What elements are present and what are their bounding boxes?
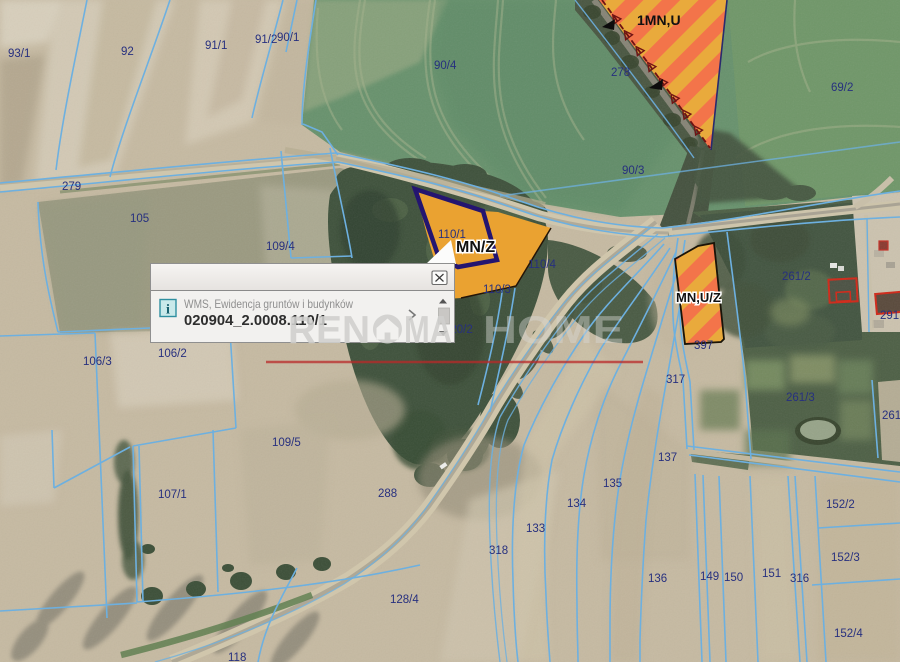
- svg-text:134: 134: [567, 498, 587, 510]
- svg-text:316: 316: [790, 573, 809, 585]
- svg-text:152/3: 152/3: [831, 552, 860, 564]
- svg-text:MN/Z: MN/Z: [456, 239, 495, 256]
- svg-text:109/4: 109/4: [266, 241, 295, 253]
- svg-text:110/4: 110/4: [528, 259, 557, 271]
- svg-text:118: 118: [228, 652, 246, 662]
- svg-text:91/1: 91/1: [205, 40, 227, 52]
- svg-text:291: 291: [880, 310, 899, 322]
- svg-text:135: 135: [603, 478, 622, 490]
- svg-text:REN: REN: [288, 309, 370, 352]
- svg-text:106/2: 106/2: [158, 348, 187, 360]
- svg-text:261/3: 261/3: [786, 392, 815, 404]
- svg-text:90/1: 90/1: [277, 32, 299, 44]
- svg-text:106/3: 106/3: [83, 356, 112, 368]
- svg-text:110/3: 110/3: [483, 284, 511, 296]
- svg-text:136: 136: [648, 573, 667, 585]
- svg-text:69/2: 69/2: [831, 82, 853, 94]
- svg-text:279: 279: [62, 181, 81, 193]
- svg-text:397: 397: [694, 340, 713, 352]
- svg-text:261/2: 261/2: [782, 271, 811, 283]
- svg-text:1MN,U: 1MN,U: [637, 12, 681, 28]
- svg-text:152/4: 152/4: [834, 628, 863, 640]
- svg-text:152/2: 152/2: [826, 499, 855, 511]
- svg-text:105: 105: [130, 213, 149, 225]
- svg-text:93/1: 93/1: [8, 48, 30, 60]
- svg-text:90/3: 90/3: [622, 165, 644, 177]
- svg-text:288: 288: [378, 488, 397, 500]
- svg-text:MN,U/Z: MN,U/Z: [676, 290, 721, 305]
- svg-text:91/2: 91/2: [255, 34, 277, 46]
- svg-text:261: 261: [882, 410, 900, 422]
- svg-text:133: 133: [526, 523, 545, 535]
- svg-text:318: 318: [489, 545, 508, 557]
- svg-text:92: 92: [121, 46, 134, 58]
- svg-text:150: 150: [724, 572, 743, 584]
- svg-text:137: 137: [658, 452, 677, 464]
- svg-text:278: 278: [611, 67, 630, 79]
- svg-text:HOME: HOME: [483, 309, 624, 352]
- svg-text:128/4: 128/4: [390, 594, 419, 606]
- svg-text:317: 317: [666, 374, 685, 386]
- svg-text:107/1: 107/1: [158, 489, 187, 501]
- svg-text:109/5: 109/5: [272, 437, 301, 449]
- svg-text:90/4: 90/4: [434, 60, 457, 72]
- svg-text:151: 151: [762, 568, 781, 580]
- svg-text:MA: MA: [404, 309, 452, 352]
- svg-text:149: 149: [700, 571, 719, 583]
- svg-text:i: i: [166, 303, 170, 318]
